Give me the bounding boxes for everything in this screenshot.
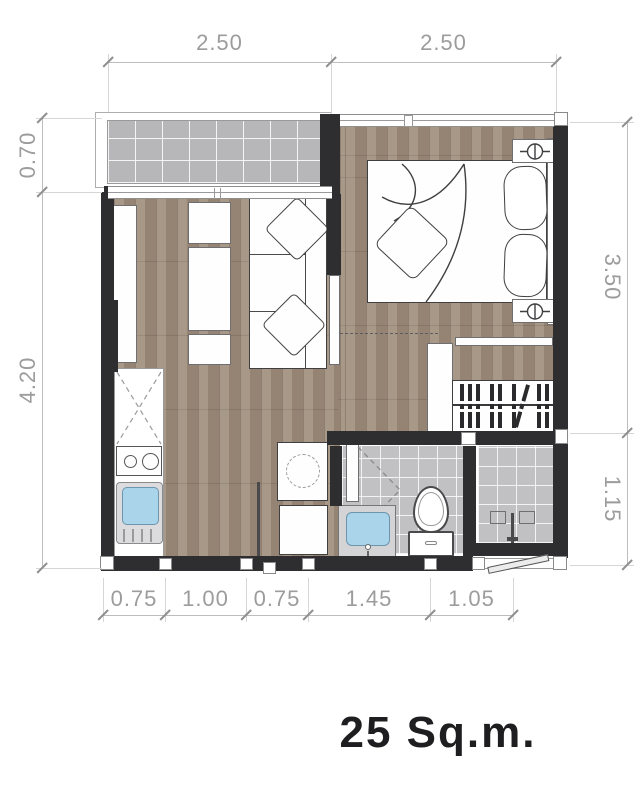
post: [553, 556, 567, 570]
partition-line: [257, 482, 260, 560]
balcony-window: [108, 186, 332, 199]
window-divider: [220, 188, 221, 199]
wall-bottom: [101, 556, 473, 571]
dim-label-bottom-5: 1.05: [430, 586, 513, 612]
wall-shower-bottom: [463, 543, 555, 556]
sofa-cushion: [261, 292, 326, 357]
post: [424, 558, 437, 570]
toilet-seat-line: [418, 492, 444, 526]
tv-console-middle: [188, 247, 231, 331]
dim-line-top: [108, 62, 556, 63]
wall-mid-horizontal: [327, 431, 568, 445]
side-table: [277, 442, 328, 501]
hanger-icon: [514, 384, 530, 427]
kitchen-sink: [116, 482, 163, 544]
wall-right: [553, 118, 568, 558]
wardrobe-ledge: [455, 337, 553, 346]
sink-basin: [346, 512, 390, 546]
dim-label-bottom-1: 0.75: [103, 586, 165, 612]
corridor-dashed-line: [340, 333, 438, 334]
tv-console-bottom: [188, 334, 231, 365]
post: [240, 558, 253, 570]
dim-line-left: [42, 118, 43, 568]
pillow: [503, 165, 548, 230]
post: [100, 556, 114, 570]
shower-fixture: [490, 511, 536, 547]
dim-line-right: [627, 122, 628, 565]
faucet-icon: [365, 544, 371, 550]
hanger-icon: [545, 384, 549, 428]
hanger-icon: [537, 384, 541, 428]
wall-bath-shower-divider: [463, 446, 476, 543]
floor-plan-canvas: 2.50 2.50 0.70 4.20 3.50 1.15 0.75 1.00 …: [0, 0, 640, 795]
dim-label-right-2: 1.15: [599, 476, 625, 523]
sink-basin: [122, 487, 159, 525]
window-divider: [214, 188, 215, 199]
kitchen-cabinet-dashed: [114, 369, 164, 447]
post: [555, 429, 568, 444]
dim-ext: [36, 192, 102, 193]
wall-left-column: [101, 300, 118, 372]
dim-label-left-1: 0.70: [15, 132, 41, 179]
post: [472, 557, 485, 570]
wardrobe: [452, 380, 558, 432]
toilet-button: [425, 541, 437, 545]
wall-bedroom-partition: [327, 194, 341, 275]
hanger-icon: [468, 384, 472, 428]
bathroom-sink: [338, 505, 396, 557]
hanger-icon: [476, 384, 480, 428]
pillow: [503, 233, 548, 297]
dim-ext: [331, 54, 332, 114]
lamp-icon: [519, 141, 551, 162]
lamp-icon: [519, 301, 551, 322]
post: [554, 112, 568, 126]
dim-label-top-1: 2.50: [108, 30, 331, 56]
hanger-icon: [498, 384, 502, 428]
post: [302, 558, 315, 570]
hanger-icon: [490, 384, 494, 428]
wardrobe-cabinet: [427, 343, 453, 433]
shower-valve-icon: [490, 511, 506, 524]
dim-label-left-2: 4.20: [15, 357, 41, 404]
sofa-cushion: [264, 196, 329, 261]
toilet: [408, 486, 454, 558]
dim-label-bottom-3: 0.75: [246, 586, 308, 612]
stove: [116, 446, 162, 476]
bedroom-door: [329, 275, 340, 365]
burner-icon: [142, 453, 159, 470]
sofa: [249, 197, 327, 369]
sink-drainer: [123, 529, 159, 542]
window-line: [340, 120, 554, 121]
area-title: 25 Sq.m.: [316, 708, 560, 758]
shower-valve-icon: [519, 511, 535, 524]
dashed-circle: [286, 454, 320, 488]
bedroom-window: [340, 114, 554, 127]
post: [263, 562, 276, 574]
wall-left: [101, 192, 114, 562]
window-divider: [404, 115, 413, 127]
post: [461, 432, 476, 445]
shower-base: [507, 537, 518, 541]
burner-icon: [124, 455, 137, 468]
balcony-floor: [107, 120, 321, 184]
tv-console-top: [188, 202, 231, 244]
storage-box: [279, 505, 328, 555]
dim-label-right-1: 3.50: [599, 254, 625, 301]
wall-bathroom-left: [330, 446, 342, 506]
dim-label-top-2: 2.50: [331, 30, 556, 56]
dim-ext: [36, 118, 102, 119]
dim-label-bottom-4: 1.45: [308, 586, 430, 612]
hanger-icon: [460, 384, 464, 428]
dim-ext: [36, 568, 102, 569]
post: [159, 558, 172, 570]
dim-label-bottom-2: 1.00: [165, 586, 246, 612]
